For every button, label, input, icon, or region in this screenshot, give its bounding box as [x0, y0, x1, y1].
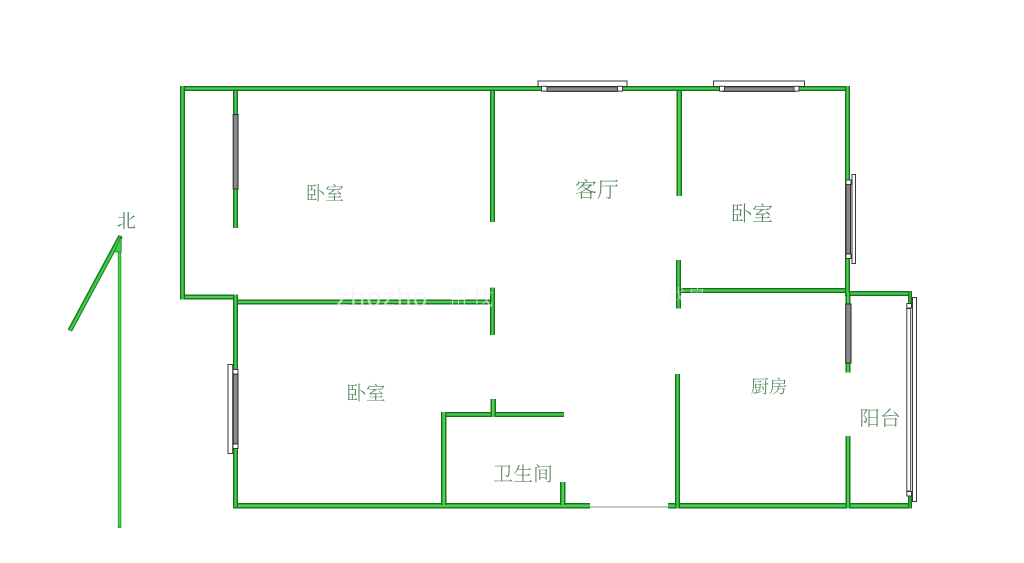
svg-text:zhozho: zhozho: [336, 282, 429, 312]
